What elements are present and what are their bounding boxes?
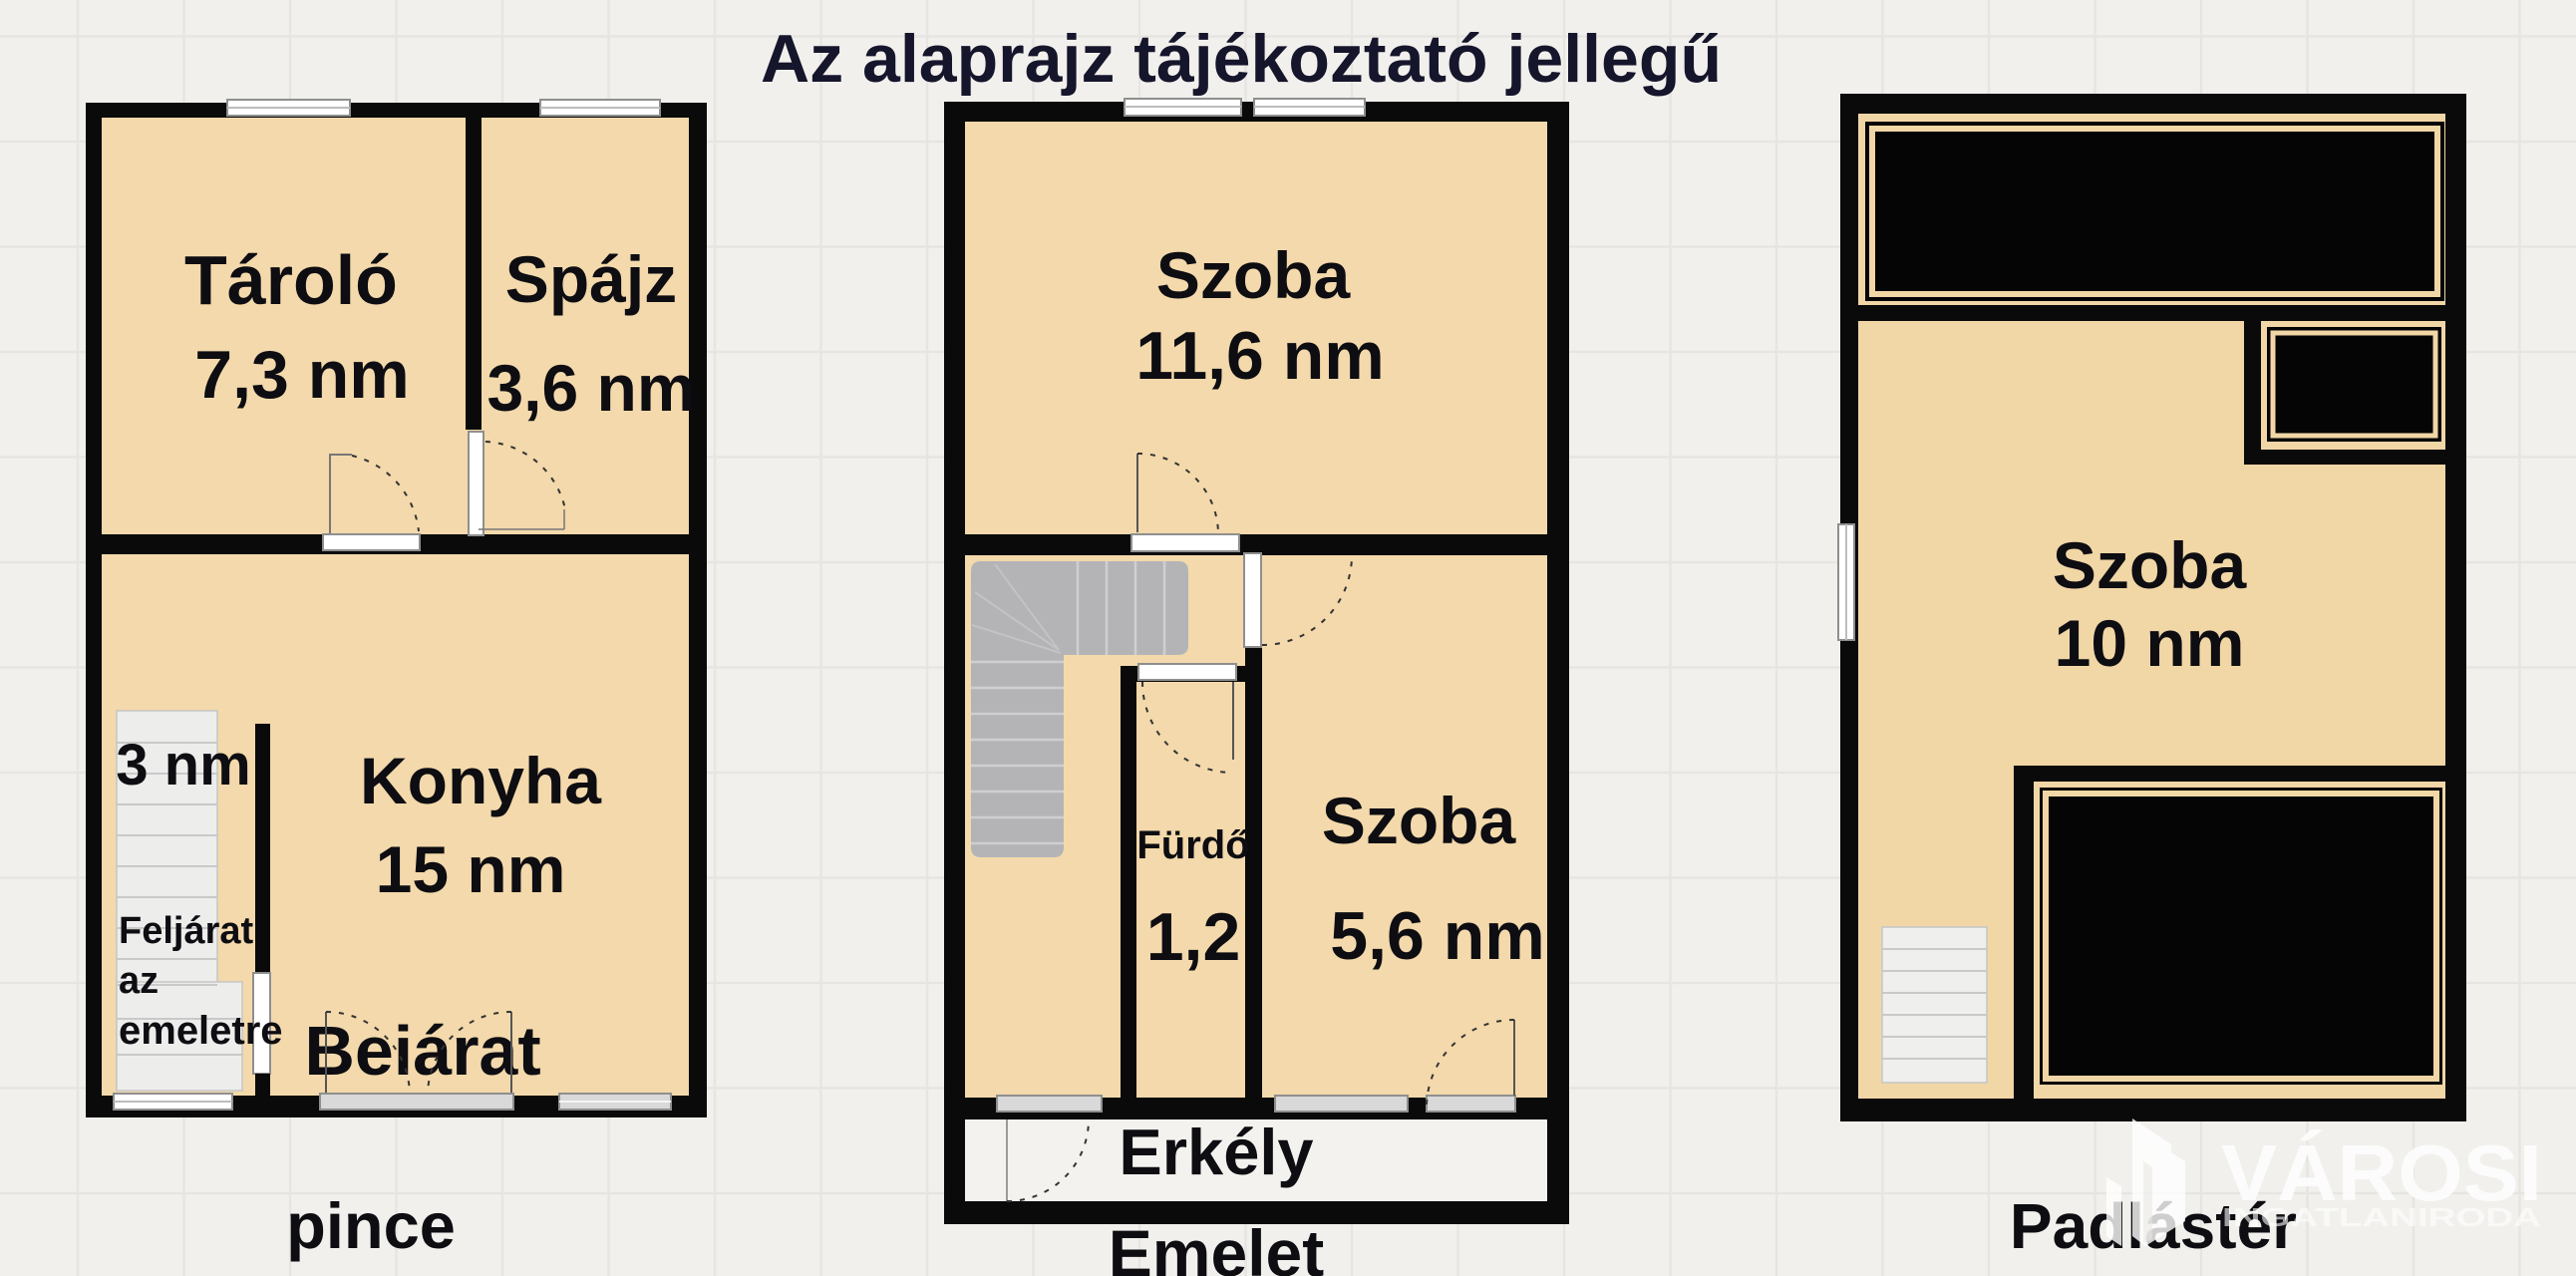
svg-text:7,3 nm: 7,3 nm — [194, 337, 409, 413]
svg-text:emeletre: emeletre — [119, 1009, 283, 1053]
svg-text:Fürdő: Fürdő — [1136, 823, 1249, 867]
svg-text:10 nm: 10 nm — [2055, 606, 2245, 680]
svg-text:Az alaprajz tájékoztató jelleg: Az alaprajz tájékoztató jellegű — [761, 21, 1722, 97]
svg-text:Feljárat: Feljárat — [119, 910, 254, 952]
svg-text:Tároló: Tároló — [184, 241, 398, 319]
svg-text:INGATLANIRODA: INGATLANIRODA — [2222, 1202, 2541, 1232]
svg-text:3 nm: 3 nm — [116, 733, 250, 797]
svg-text:Beiárat: Beiárat — [304, 1012, 540, 1090]
svg-text:1,2: 1,2 — [1146, 899, 1241, 975]
svg-text:Szoba: Szoba — [1156, 238, 1352, 312]
svg-text:Erkély: Erkély — [1119, 1116, 1313, 1188]
svg-text:15 nm: 15 nm — [376, 832, 566, 906]
svg-text:Szoba: Szoba — [2053, 528, 2248, 602]
svg-text:5,6 nm: 5,6 nm — [1330, 898, 1544, 974]
svg-text:3,6 nm: 3,6 nm — [486, 351, 695, 425]
svg-text:Szoba: Szoba — [1322, 784, 1517, 857]
svg-text:pince: pince — [286, 1189, 456, 1262]
svg-text:Konyha: Konyha — [360, 744, 602, 817]
svg-text:az: az — [119, 960, 159, 1002]
svg-text:11,6 nm: 11,6 nm — [1135, 318, 1385, 394]
svg-text:Emelet: Emelet — [1109, 1216, 1324, 1276]
svg-text:Spájz: Spájz — [505, 242, 677, 316]
